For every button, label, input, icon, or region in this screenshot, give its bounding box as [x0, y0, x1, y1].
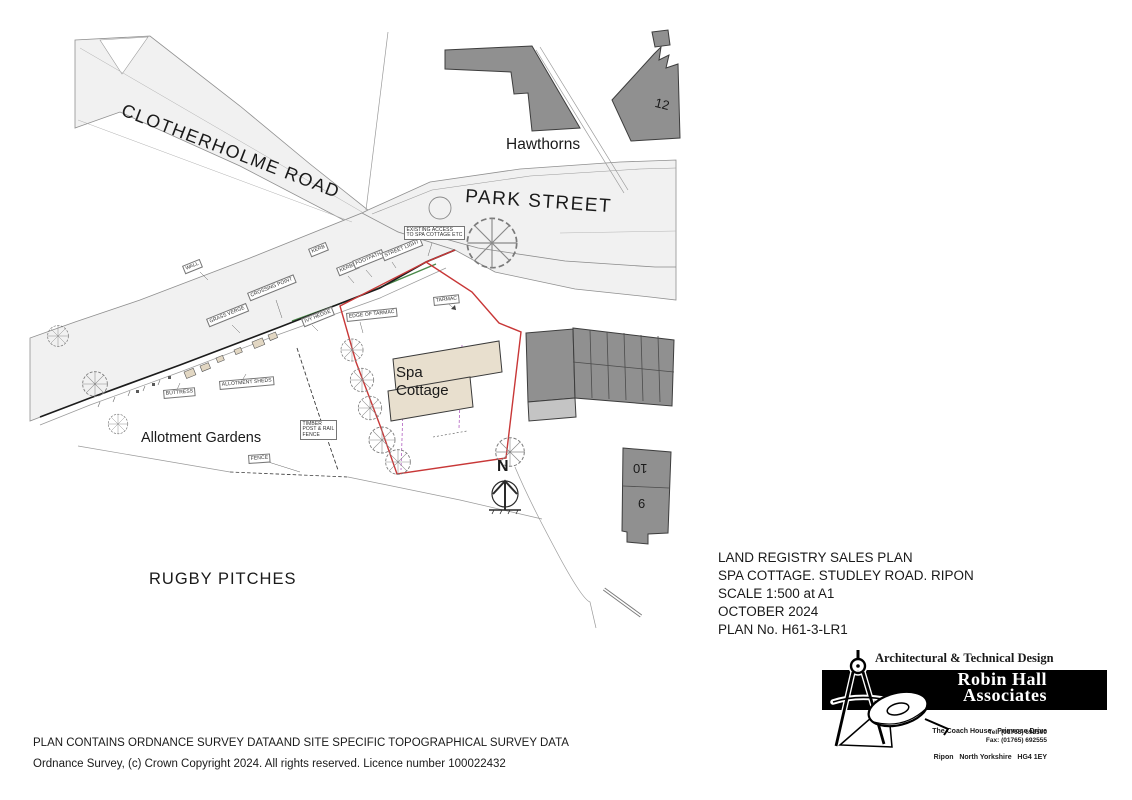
building-number-10-text: 10	[633, 461, 647, 476]
title-line-2: SPA COTTAGE. STUDLEY ROAD. RIPON	[718, 567, 974, 585]
tree-icon	[341, 339, 363, 361]
terrace-left-block	[526, 329, 575, 402]
building-number-9-text: 9	[638, 496, 645, 511]
site-label-cottage: Cottage	[396, 382, 449, 400]
logo-tel: Tel: (01765) 692500	[986, 729, 1047, 737]
title-line-4: OCTOBER 2024	[718, 603, 974, 621]
footer-line-2: Ordnance Survey, (c) Crown Copyright 202…	[33, 758, 506, 770]
area-label-hawthorns: Hawthorns	[506, 136, 580, 154]
building-number-10: 10	[633, 461, 647, 476]
garden-dashed-line	[433, 431, 467, 437]
tree-icon	[358, 396, 381, 419]
logo-phone: Tel: (01765) 692500 Fax: (01765) 692555	[986, 729, 1047, 745]
anno-existing-access: EXISTING ACCESS TO SPA COTTAGE ETC	[404, 226, 465, 240]
terrace-rear-strip	[528, 398, 576, 421]
building-top-sliver	[652, 30, 670, 47]
north-label: N	[497, 458, 509, 476]
tree-icon	[48, 326, 69, 347]
road-studley	[30, 213, 455, 421]
logo-company-name: Robin Hall Associates	[957, 671, 1047, 703]
area-label-rugby-pitches: RUGBY PITCHES	[149, 570, 296, 589]
title-line-1: LAND REGISTRY SALES PLAN	[718, 549, 974, 567]
title-block: LAND REGISTRY SALES PLAN SPA COTTAGE. ST…	[718, 549, 974, 639]
wall-segment-core	[604, 589, 641, 616]
curved-boundary-path	[515, 467, 596, 628]
site-label-spa: Spa	[396, 364, 449, 382]
building-12	[612, 47, 680, 141]
tree-icon	[386, 450, 411, 475]
area-label-allotment-gardens: Allotment Gardens	[141, 430, 261, 446]
compass-logo-icon	[818, 643, 958, 755]
timber-post-rail-fence-line	[297, 348, 338, 470]
tree-icon	[108, 414, 128, 434]
logo-name-line2: Associates	[957, 687, 1047, 703]
land-registry-sales-plan-page: { "title_block": { "line1": "LAND REGIST…	[0, 0, 1132, 800]
north-arrow-icon	[489, 481, 521, 514]
tree-icon	[369, 427, 395, 453]
tree-icon	[467, 218, 516, 267]
title-line-3: SCALE 1:500 at A1	[718, 585, 974, 603]
building-number-9: 9	[638, 496, 645, 511]
fence-dashed-line	[230, 472, 348, 477]
rugby-boundary-a	[78, 446, 230, 472]
logo-fax: Fax: (01765) 692555	[986, 737, 1047, 745]
tarmac-arrowhead	[451, 305, 456, 310]
site-label-spa-cottage: Spa Cottage	[396, 364, 449, 400]
anno-timber-fence: TIMBER POST & RAIL FENCE	[300, 420, 337, 440]
footer-line-1: PLAN CONTAINS ORDNANCE SURVEY DATAAND SI…	[33, 737, 569, 749]
tree-icon	[83, 372, 108, 397]
tree-icon	[350, 368, 373, 391]
title-line-5: PLAN No. H61-3-LR1	[718, 621, 974, 639]
plot-line-west	[366, 32, 388, 210]
anno-fence: FENCE	[248, 453, 271, 463]
robin-hall-associates-logo: Architectural & Technical Design Robin H…	[822, 645, 1107, 750]
